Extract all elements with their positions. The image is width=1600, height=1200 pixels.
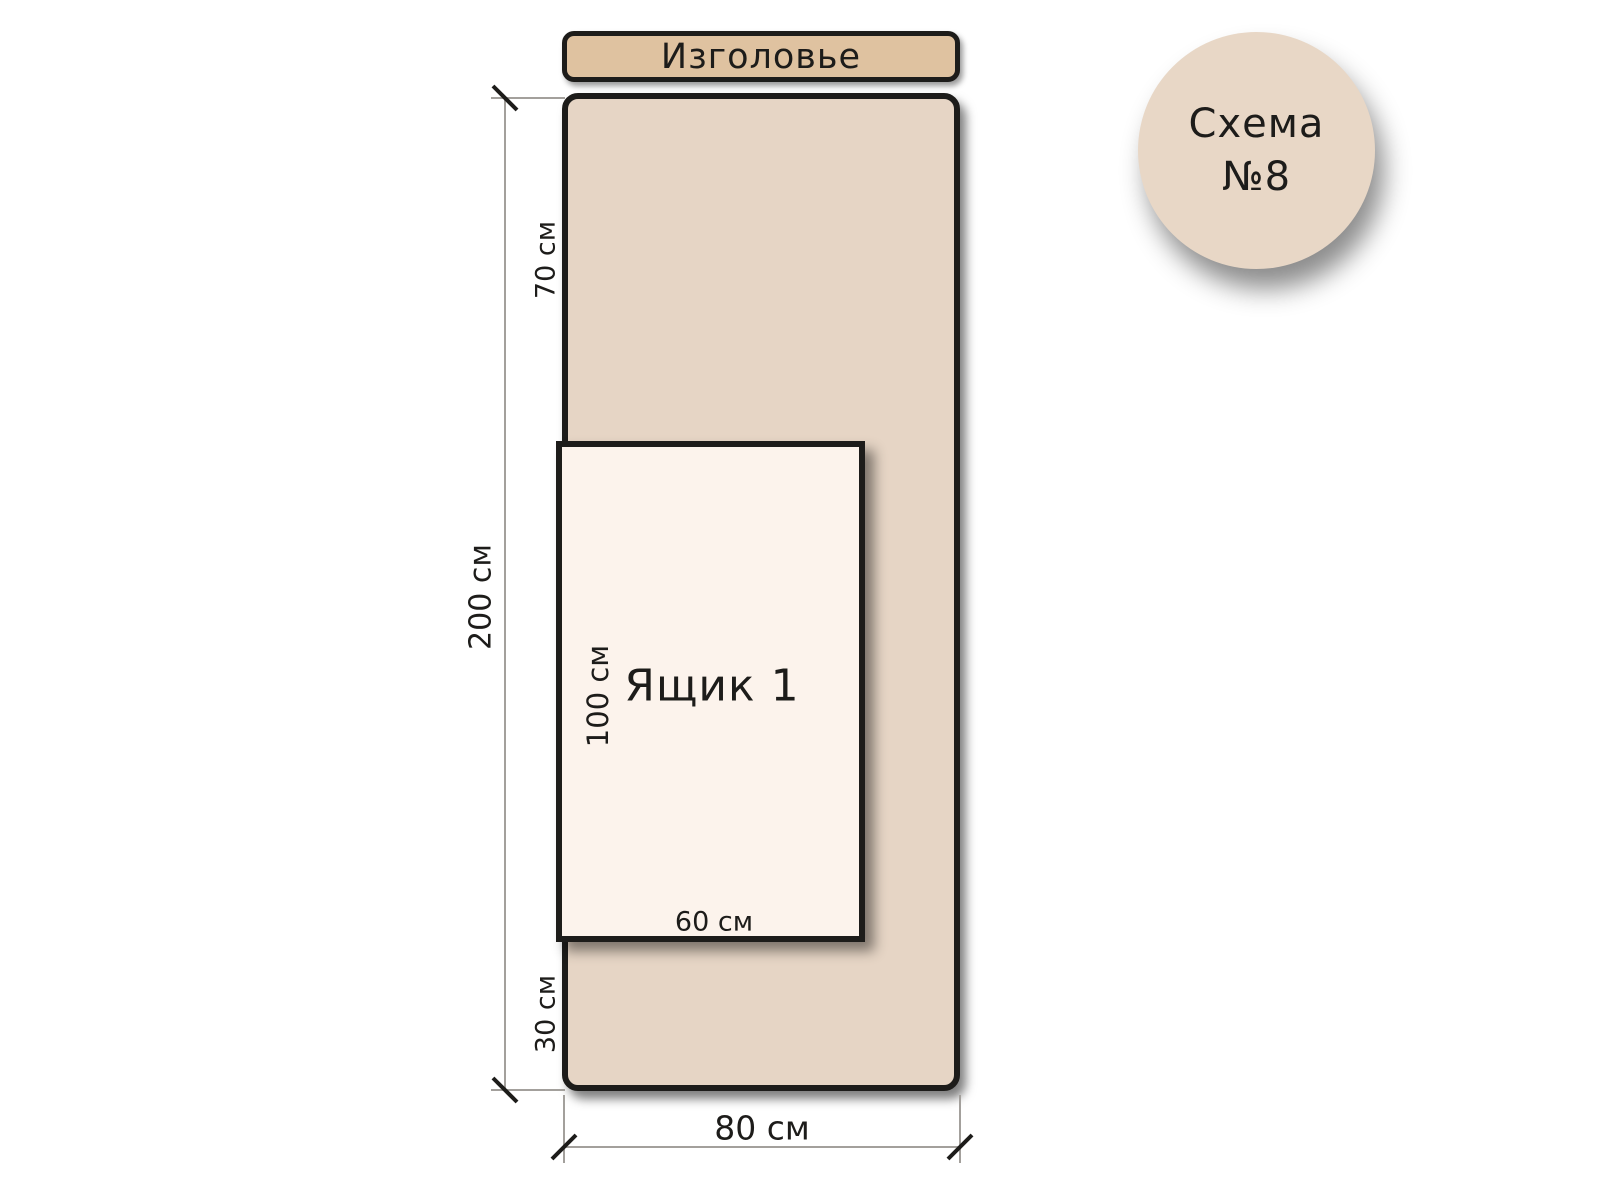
bed-length-dimension-line xyxy=(504,97,506,1091)
scheme-badge: Схема №8 xyxy=(1138,32,1375,269)
bed-length-label: 200 см xyxy=(464,544,499,650)
drawer-length-label: 100 см xyxy=(581,645,615,747)
drawer-width-label: 60 см xyxy=(675,907,753,938)
bed-width-label: 80 см xyxy=(714,1109,810,1148)
extension-line-under-left xyxy=(563,1095,565,1163)
scheme-badge-number: №8 xyxy=(1222,151,1291,204)
scheme-badge-title: Схема xyxy=(1189,98,1325,151)
diagram-canvas: Изголовье 70 см 200 см 30 см Ящик 1 100 … xyxy=(0,0,1600,1200)
headboard-label: Изголовье xyxy=(661,37,861,77)
drawer-to-foot-label: 30 см xyxy=(531,975,562,1053)
drawer-box: Ящик 1 100 см 60 см xyxy=(556,441,865,942)
extension-line-under-right xyxy=(959,1095,961,1163)
headboard-box: Изголовье xyxy=(562,31,960,82)
drawer-label: Ящик 1 xyxy=(624,661,799,712)
head-to-drawer-label: 70 см xyxy=(531,221,562,299)
